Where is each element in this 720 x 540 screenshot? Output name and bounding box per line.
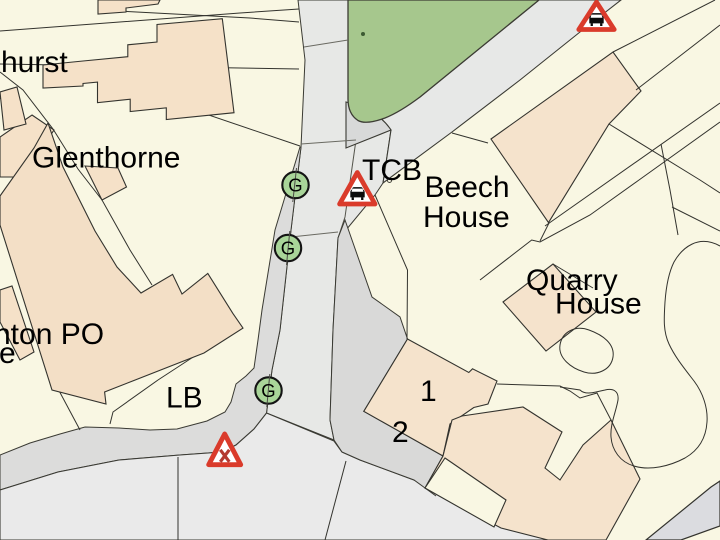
svg-text:House: House: [423, 201, 510, 234]
svg-text:Beech: Beech: [425, 171, 510, 204]
svg-text:LB: LB: [166, 382, 203, 415]
svg-text:G: G: [288, 175, 302, 196]
svg-text:G: G: [281, 238, 295, 259]
svg-text:hurst: hurst: [1, 46, 68, 79]
svg-text:House: House: [555, 288, 642, 321]
svg-text:2: 2: [392, 416, 409, 449]
svg-text:G: G: [261, 380, 275, 401]
svg-text:TCB: TCB: [362, 154, 422, 187]
svg-text:e: e: [0, 337, 16, 370]
svg-text:Glenthorne: Glenthorne: [32, 142, 180, 175]
svg-text:1: 1: [420, 375, 437, 408]
